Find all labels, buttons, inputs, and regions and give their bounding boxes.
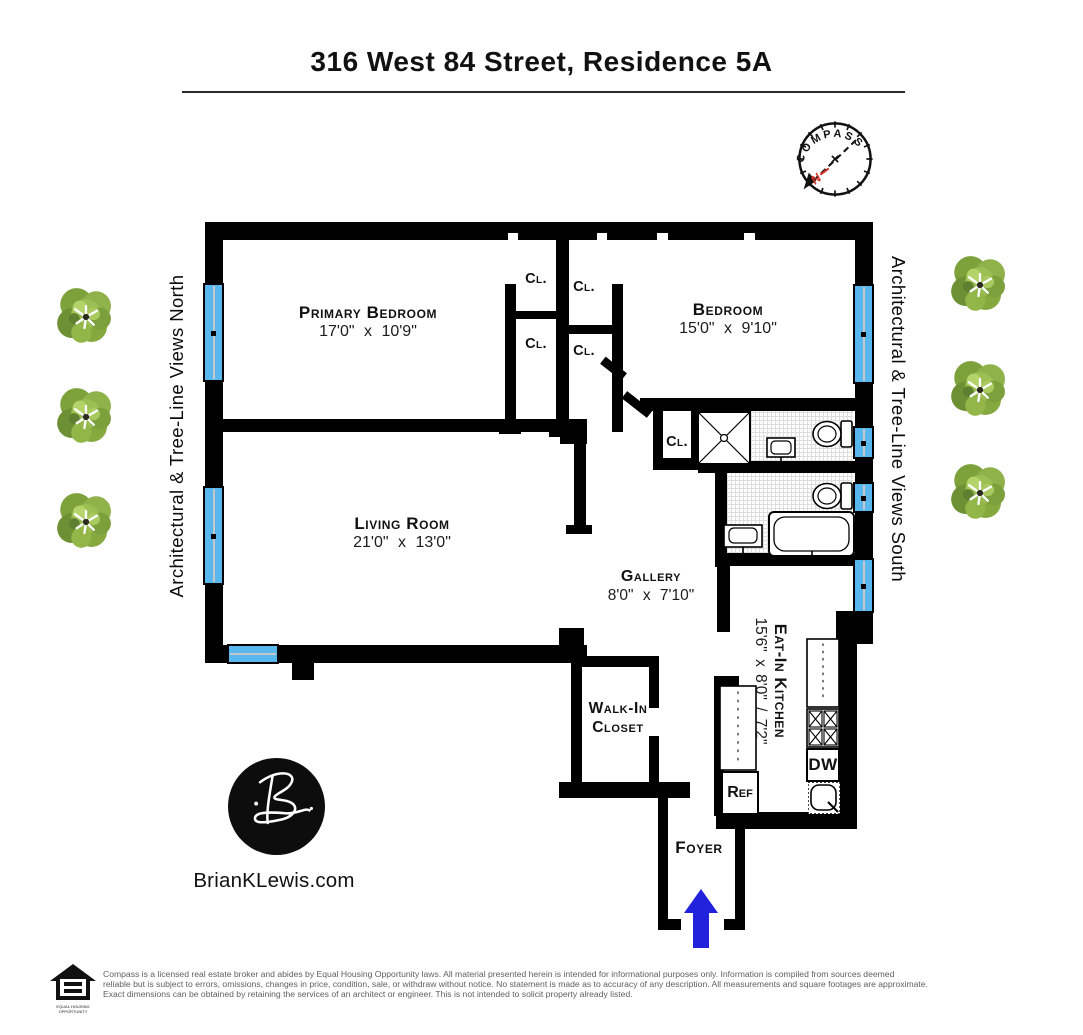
entry-arrow-icon <box>693 911 709 948</box>
room-dims: 8'0" x 7'10" <box>608 587 694 605</box>
brand-logo <box>228 758 325 855</box>
toilet-icon <box>810 481 854 511</box>
wall-break <box>744 233 755 241</box>
disclaimer: Compass is a licensed real estate broker… <box>103 969 1078 1000</box>
wall <box>559 628 584 658</box>
wall <box>205 222 873 240</box>
disclaimer-line: Compass is a licensed real estate broker… <box>103 969 1078 979</box>
website-link[interactable]: BrianKLewis.com <box>193 869 354 893</box>
room-label-kitchen: Eat-In Kitchen 15'6" x 8'0" / 7'2" <box>745 567 789 795</box>
tree-icon <box>47 278 125 356</box>
wall <box>668 919 681 930</box>
room-label-foyer: Foyer <box>675 838 722 858</box>
wall <box>549 428 575 437</box>
sink-icon <box>723 524 763 554</box>
tree-icon <box>47 378 125 456</box>
room-dims: 17'0" x 10'9" <box>299 323 437 342</box>
dishwasher-label: DW <box>808 755 837 775</box>
wall <box>717 566 730 632</box>
wall <box>505 311 567 319</box>
compass-label: COMPASS <box>794 128 866 165</box>
dishwasher: DW <box>806 748 840 782</box>
closet-label: Cl. <box>525 336 547 352</box>
sink-icon <box>766 437 796 463</box>
view-label-north: Architectural & Tree-Line Views North <box>166 256 188 616</box>
closet-label: Cl. <box>573 279 595 295</box>
wall-break <box>657 233 668 241</box>
tree-icon <box>941 351 1019 429</box>
entry-arrow-icon <box>684 889 718 913</box>
window <box>853 284 874 384</box>
wall <box>574 440 586 532</box>
closet-label: Cl. <box>525 271 547 287</box>
disclaimer-line: Exact dimensions can be obtained by reta… <box>103 989 1078 999</box>
room-label-bedroom: Bedroom 15'0" x 9'10" <box>679 300 777 339</box>
wall-break <box>597 233 607 241</box>
room-label-living-room: Living Room 21'0" x 13'0" <box>353 514 451 553</box>
room-name: Walk-In Closet <box>578 700 658 737</box>
tree-icon <box>47 483 125 561</box>
room-label-primary-bedroom: Primary Bedroom 17'0" x 10'9" <box>299 303 437 342</box>
closet-label: Cl. <box>666 434 688 450</box>
room-name: Living Room <box>353 514 451 534</box>
wall <box>649 736 659 786</box>
equal-housing-icon <box>49 964 97 1004</box>
wall <box>566 525 592 534</box>
kitchen-sink-icon <box>808 782 840 814</box>
wall <box>658 798 668 930</box>
tree-icon <box>941 246 1019 324</box>
wall <box>855 382 873 428</box>
room-label-gallery: Gallery 8'0" x 7'10" <box>608 568 694 605</box>
wall-break <box>508 233 518 241</box>
stove-icon <box>806 708 840 748</box>
svg-text:COMPASS: COMPASS <box>794 128 866 165</box>
title-divider <box>182 91 905 93</box>
room-dims: 21'0" x 13'0" <box>353 534 451 553</box>
room-name: Eat-In Kitchen <box>769 567 789 795</box>
disclaimer-line: reliable but is subject to errors, omiss… <box>103 979 1078 989</box>
compass-icon: N COMPASS <box>790 114 880 204</box>
bathtub-icon <box>768 511 855 557</box>
window <box>853 426 874 459</box>
wall <box>499 425 521 434</box>
wall <box>855 457 873 484</box>
room-name: Bedroom <box>679 300 777 320</box>
shower-icon <box>697 411 751 465</box>
room-dims: 15'6" x 8'0" / 7'2" <box>751 567 770 795</box>
wall <box>582 656 657 667</box>
window <box>203 283 224 382</box>
wall <box>735 829 745 930</box>
room-label-walk-in-closet: Walk-In Closet <box>578 700 658 737</box>
room-dims: 15'0" x 9'10" <box>679 320 777 339</box>
floorplan-page: 316 West 84 Street, Residence 5A <box>0 0 1083 1035</box>
equal-housing-caption: EQUAL HOUSING OPPORTUNITY <box>49 1004 97 1014</box>
room-name: Primary Bedroom <box>299 303 437 323</box>
kitchen-counter <box>806 638 840 708</box>
wall <box>724 919 735 930</box>
window <box>853 482 874 513</box>
wall <box>205 380 223 488</box>
wall <box>556 240 569 436</box>
wall <box>559 782 690 798</box>
wall <box>855 240 873 286</box>
toilet-icon <box>810 419 854 449</box>
room-name: Gallery <box>608 568 694 587</box>
wall <box>292 660 314 680</box>
view-label-south: Architectural & Tree-Line Views South <box>887 239 909 599</box>
wall <box>612 284 623 432</box>
tree-icon <box>941 454 1019 532</box>
wall <box>505 284 516 432</box>
wall <box>839 640 857 826</box>
window <box>203 486 224 585</box>
wall <box>205 240 223 285</box>
page-title: 316 West 84 Street, Residence 5A <box>0 46 1083 78</box>
wall <box>640 398 855 411</box>
logo-monogram-icon <box>228 758 325 855</box>
window <box>853 558 874 613</box>
wall <box>855 511 873 560</box>
room-name: Foyer <box>675 838 722 858</box>
wall <box>567 325 623 334</box>
closet-label: Cl. <box>573 343 595 359</box>
window <box>227 644 279 664</box>
